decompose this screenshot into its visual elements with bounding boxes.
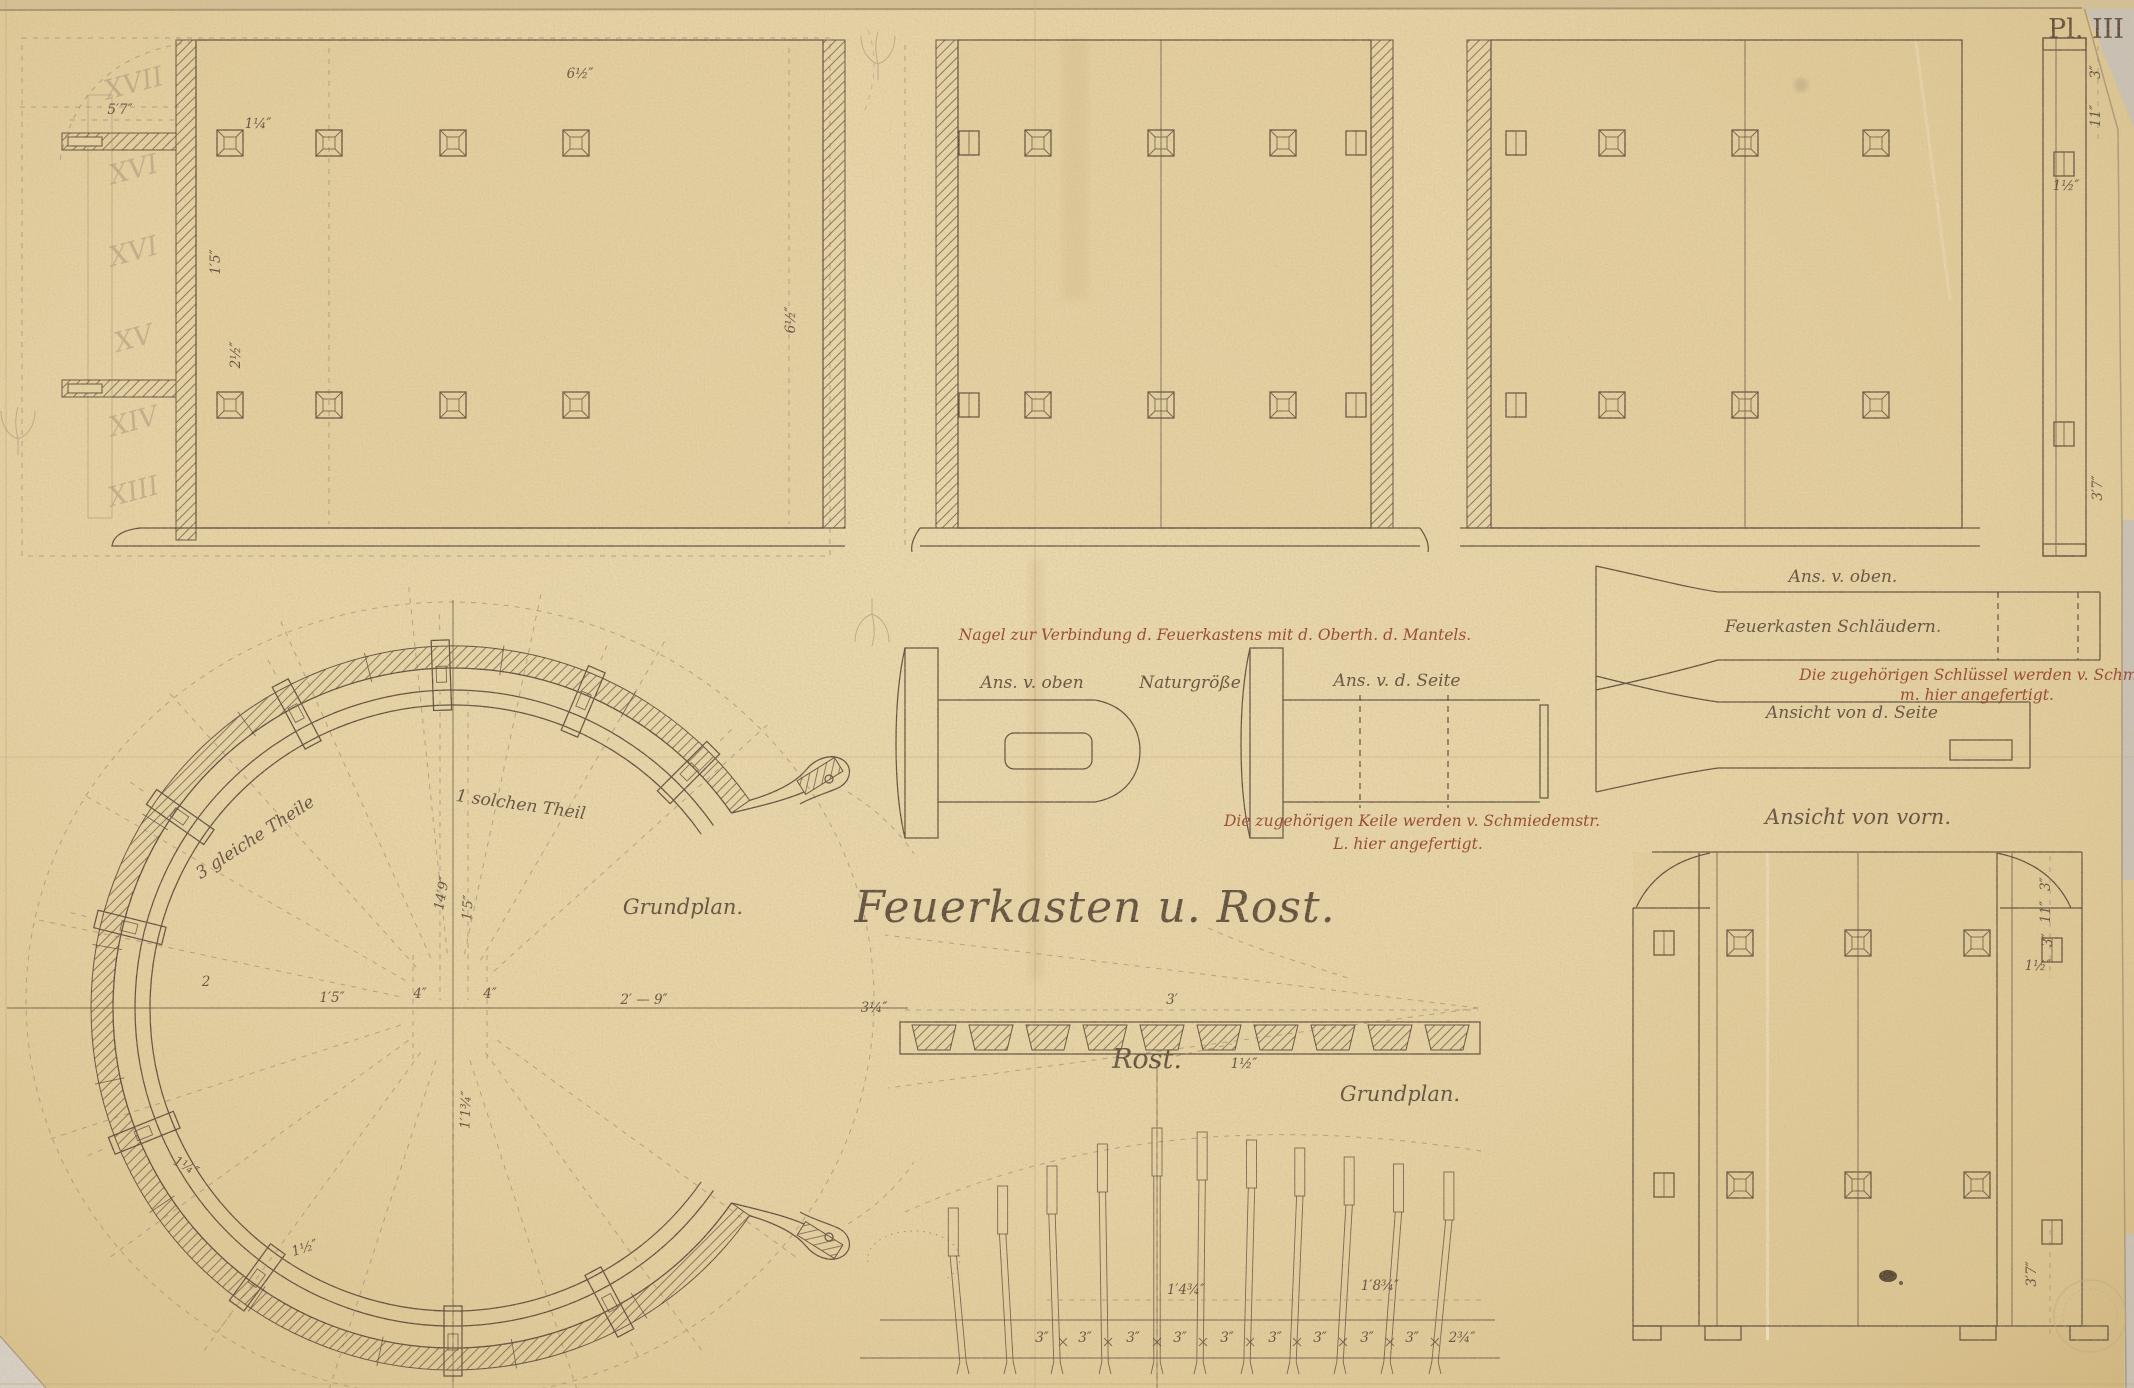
paper-grain [0,0,2134,1388]
technical-drawing: 5′7″1¼″1′5″2½″6½″6½″3″11″1½″3′7″14′9″1′5… [0,0,2134,1388]
drawing-sheet: 5′7″1¼″1′5″2½″6½″6½″3″11″1½″3′7″14′9″1′5… [0,0,2134,1388]
